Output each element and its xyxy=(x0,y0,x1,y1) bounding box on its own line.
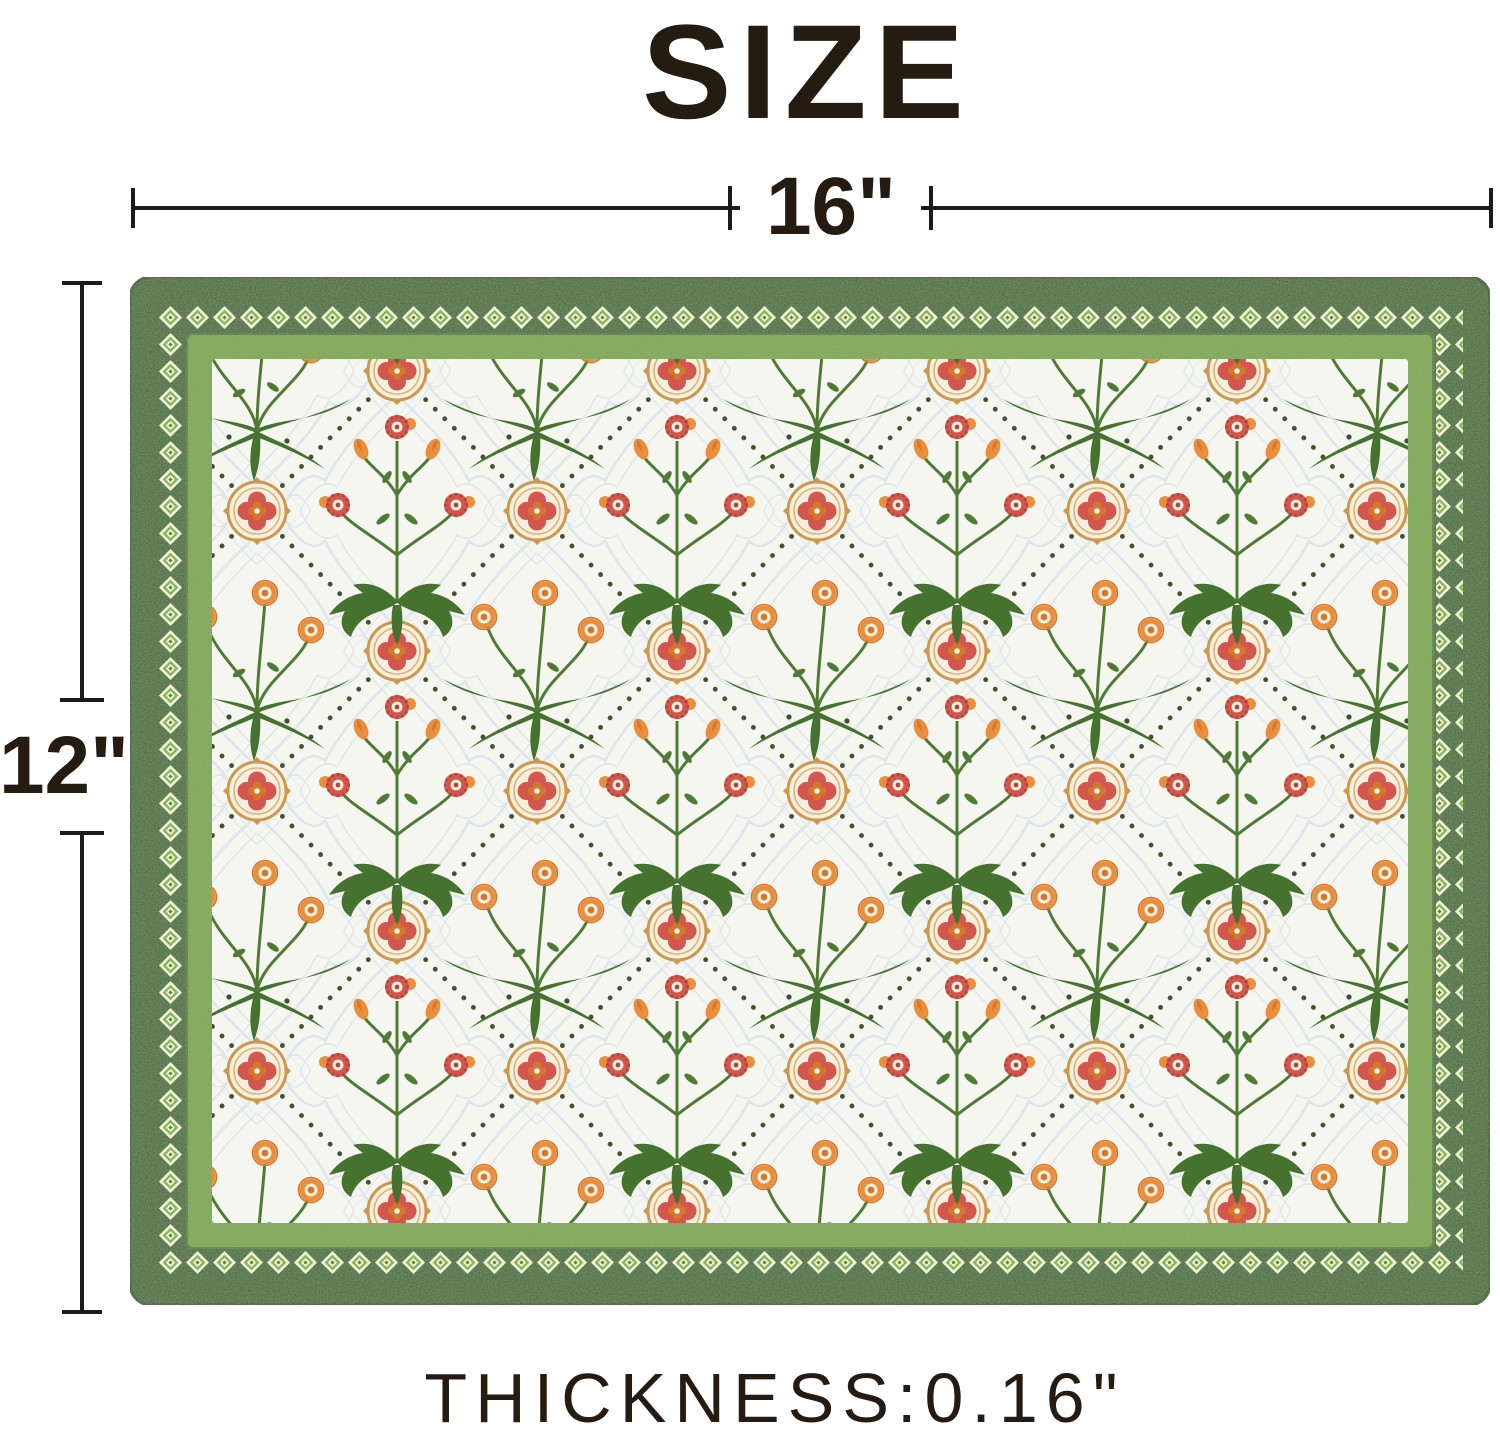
width-dim-label-tick-left xyxy=(728,186,732,230)
width-dim-label: 16" xyxy=(766,166,896,248)
product-size-diagram: { "title": "SIZE", "dimensions": { "widt… xyxy=(0,0,1500,1437)
height-dim-label-tick-bottom xyxy=(60,831,104,835)
height-dim-label-tick-top xyxy=(60,698,104,702)
diamond-chain-bottom xyxy=(157,1251,1463,1278)
width-dim-line-left-segment xyxy=(133,206,740,210)
placemat-graphic xyxy=(130,277,1490,1305)
width-dim-line-right-segment xyxy=(921,206,1493,210)
diamond-chain-top xyxy=(157,304,1463,331)
diamond-chain-left xyxy=(157,304,184,1278)
height-dim-end-tick-top xyxy=(62,281,102,285)
height-dim-label: 12" xyxy=(0,725,129,807)
diamond-chain-right xyxy=(1436,304,1463,1278)
size-title: SIZE xyxy=(642,6,972,140)
placemat-interior-pattern xyxy=(212,359,1408,1223)
thickness-label: THICKNESS:0.16" xyxy=(424,1363,1125,1433)
height-dim-end-tick-bottom xyxy=(62,1310,102,1314)
width-dim-label-tick-right xyxy=(929,186,933,230)
width-dim-end-tick-left xyxy=(131,188,135,228)
width-dim-end-tick-right xyxy=(1489,188,1493,228)
height-dim-line-top-segment xyxy=(80,283,84,700)
height-dim-line-bottom-segment xyxy=(80,833,84,1312)
